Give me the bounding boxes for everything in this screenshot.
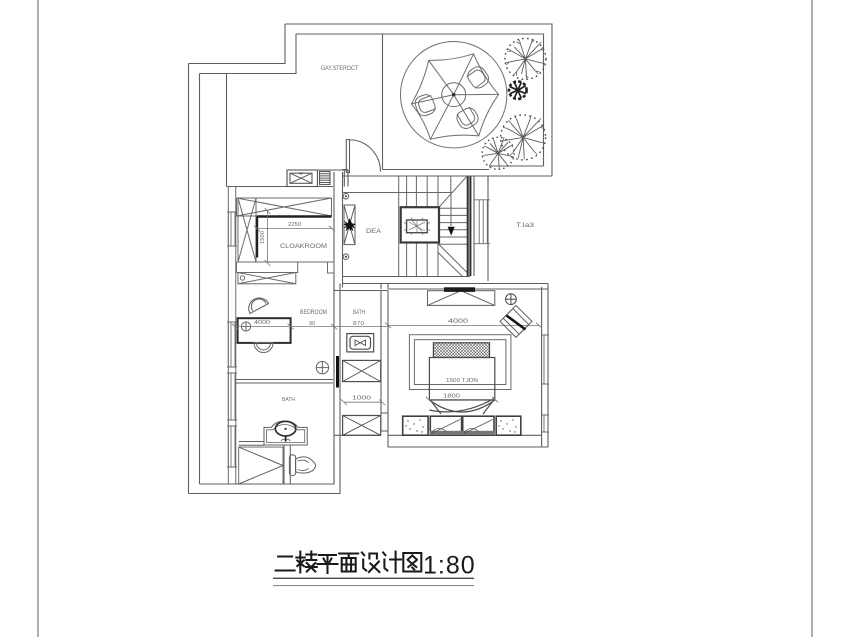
svg-text:1:80: 1:80 bbox=[423, 552, 476, 580]
